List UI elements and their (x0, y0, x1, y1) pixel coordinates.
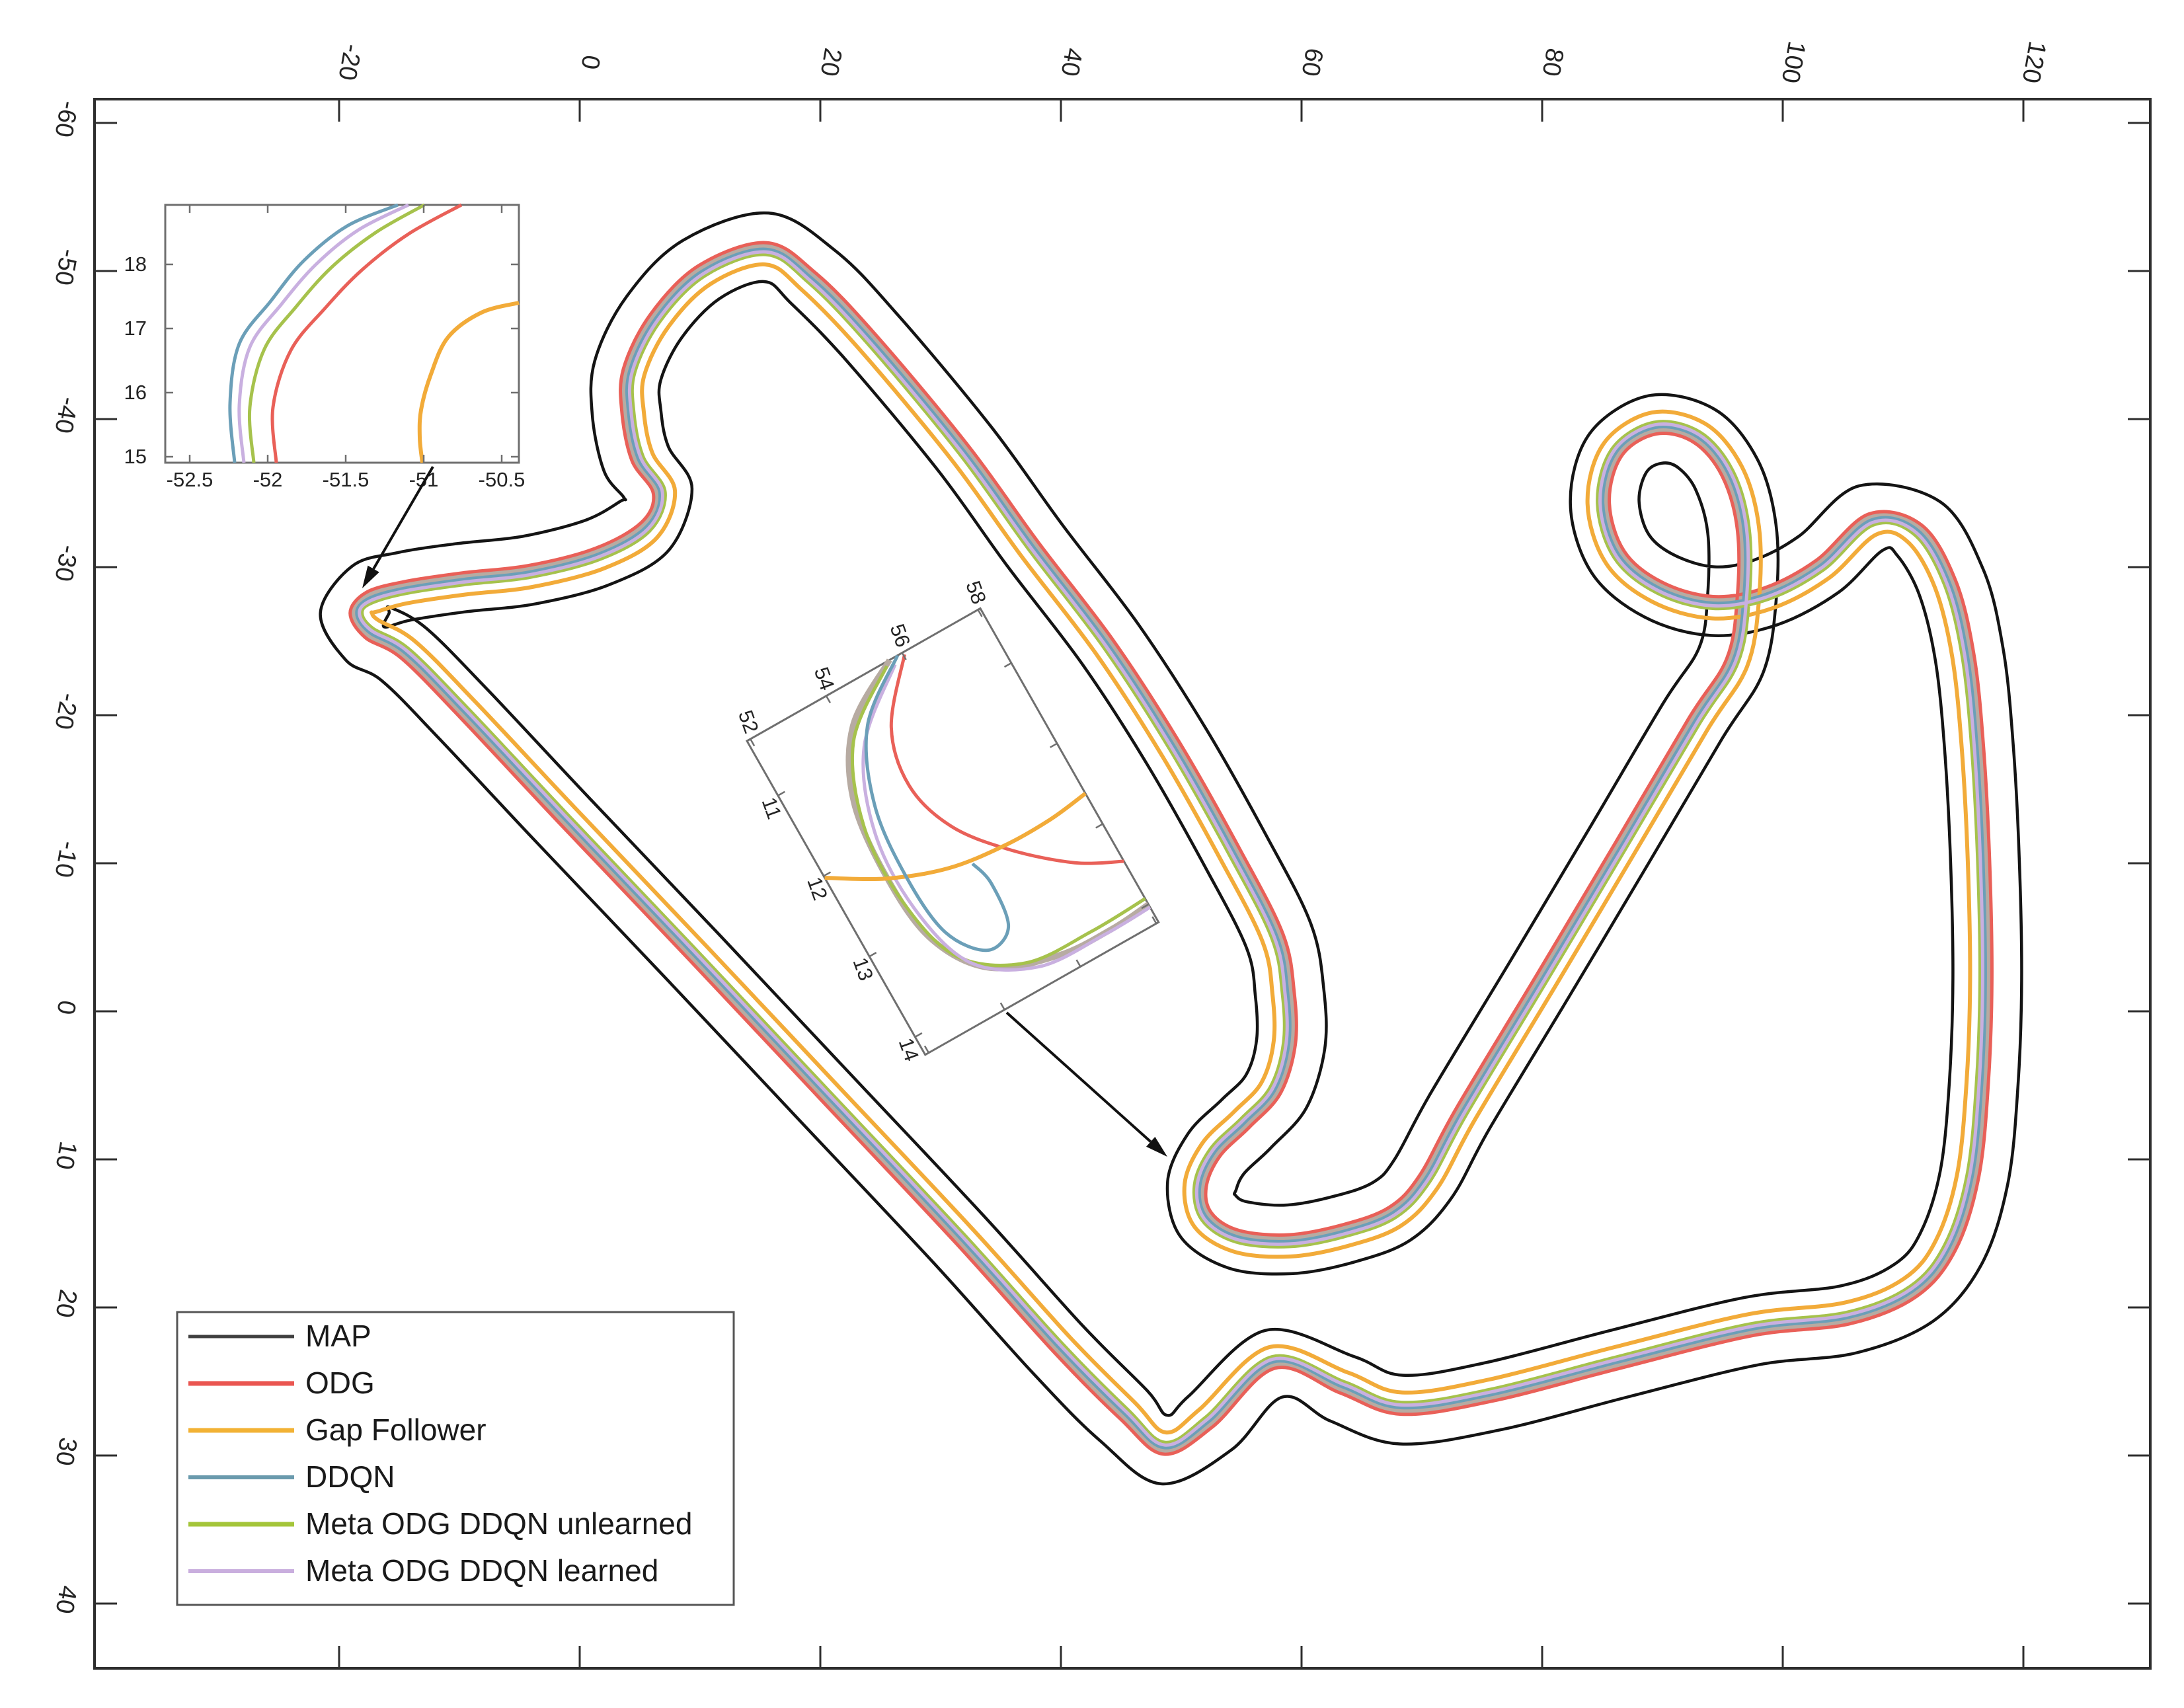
x-tick-label: 60 (1296, 46, 1328, 79)
inset-1-x-tick-label: -52 (253, 468, 283, 491)
inset-1-y-tick-label: 17 (124, 317, 147, 340)
y-tick-label: 10 (50, 1140, 82, 1172)
legend: MAPODGGap FollowerDDQNMeta ODG DDQN unle… (177, 1312, 734, 1605)
y-tick-label: 20 (50, 1288, 82, 1320)
x-tick-label: 80 (1536, 46, 1569, 79)
x-tick-label: 40 (1055, 46, 1087, 79)
inset-1-y-tick-label: 15 (124, 445, 147, 468)
legend-label: Gap Follower (305, 1413, 487, 1447)
inset-1-y-tick-label: 18 (124, 252, 147, 276)
y-tick-label: 30 (50, 1436, 82, 1468)
x-tick-label: 20 (814, 46, 847, 79)
inset-1-y-tick-label: 16 (124, 381, 147, 404)
y-tick-label: 40 (50, 1584, 82, 1616)
inset-1-x-tick-label: -51 (409, 468, 439, 491)
legend-label: ODG (305, 1366, 375, 1400)
legend-label: DDQN (305, 1459, 395, 1494)
legend-label: Meta ODG DDQN learned (305, 1553, 658, 1588)
legend-label: MAP (305, 1319, 371, 1353)
inset-1-x-tick-label: -51.5 (323, 468, 370, 491)
legend-label: Meta ODG DDQN unlearned (305, 1506, 692, 1541)
track-map-plot: -20020406080100120-60-50-40-30-20-100102… (0, 0, 2184, 1708)
figure-root: -20020406080100120-60-50-40-30-20-100102… (0, 0, 2184, 1708)
inset-1: -52.5-52-51.5-51-50.518171615 (124, 205, 526, 491)
inset-1-x-tick-label: -50.5 (479, 468, 526, 491)
inset-1-x-tick-label: -52.5 (167, 468, 214, 491)
